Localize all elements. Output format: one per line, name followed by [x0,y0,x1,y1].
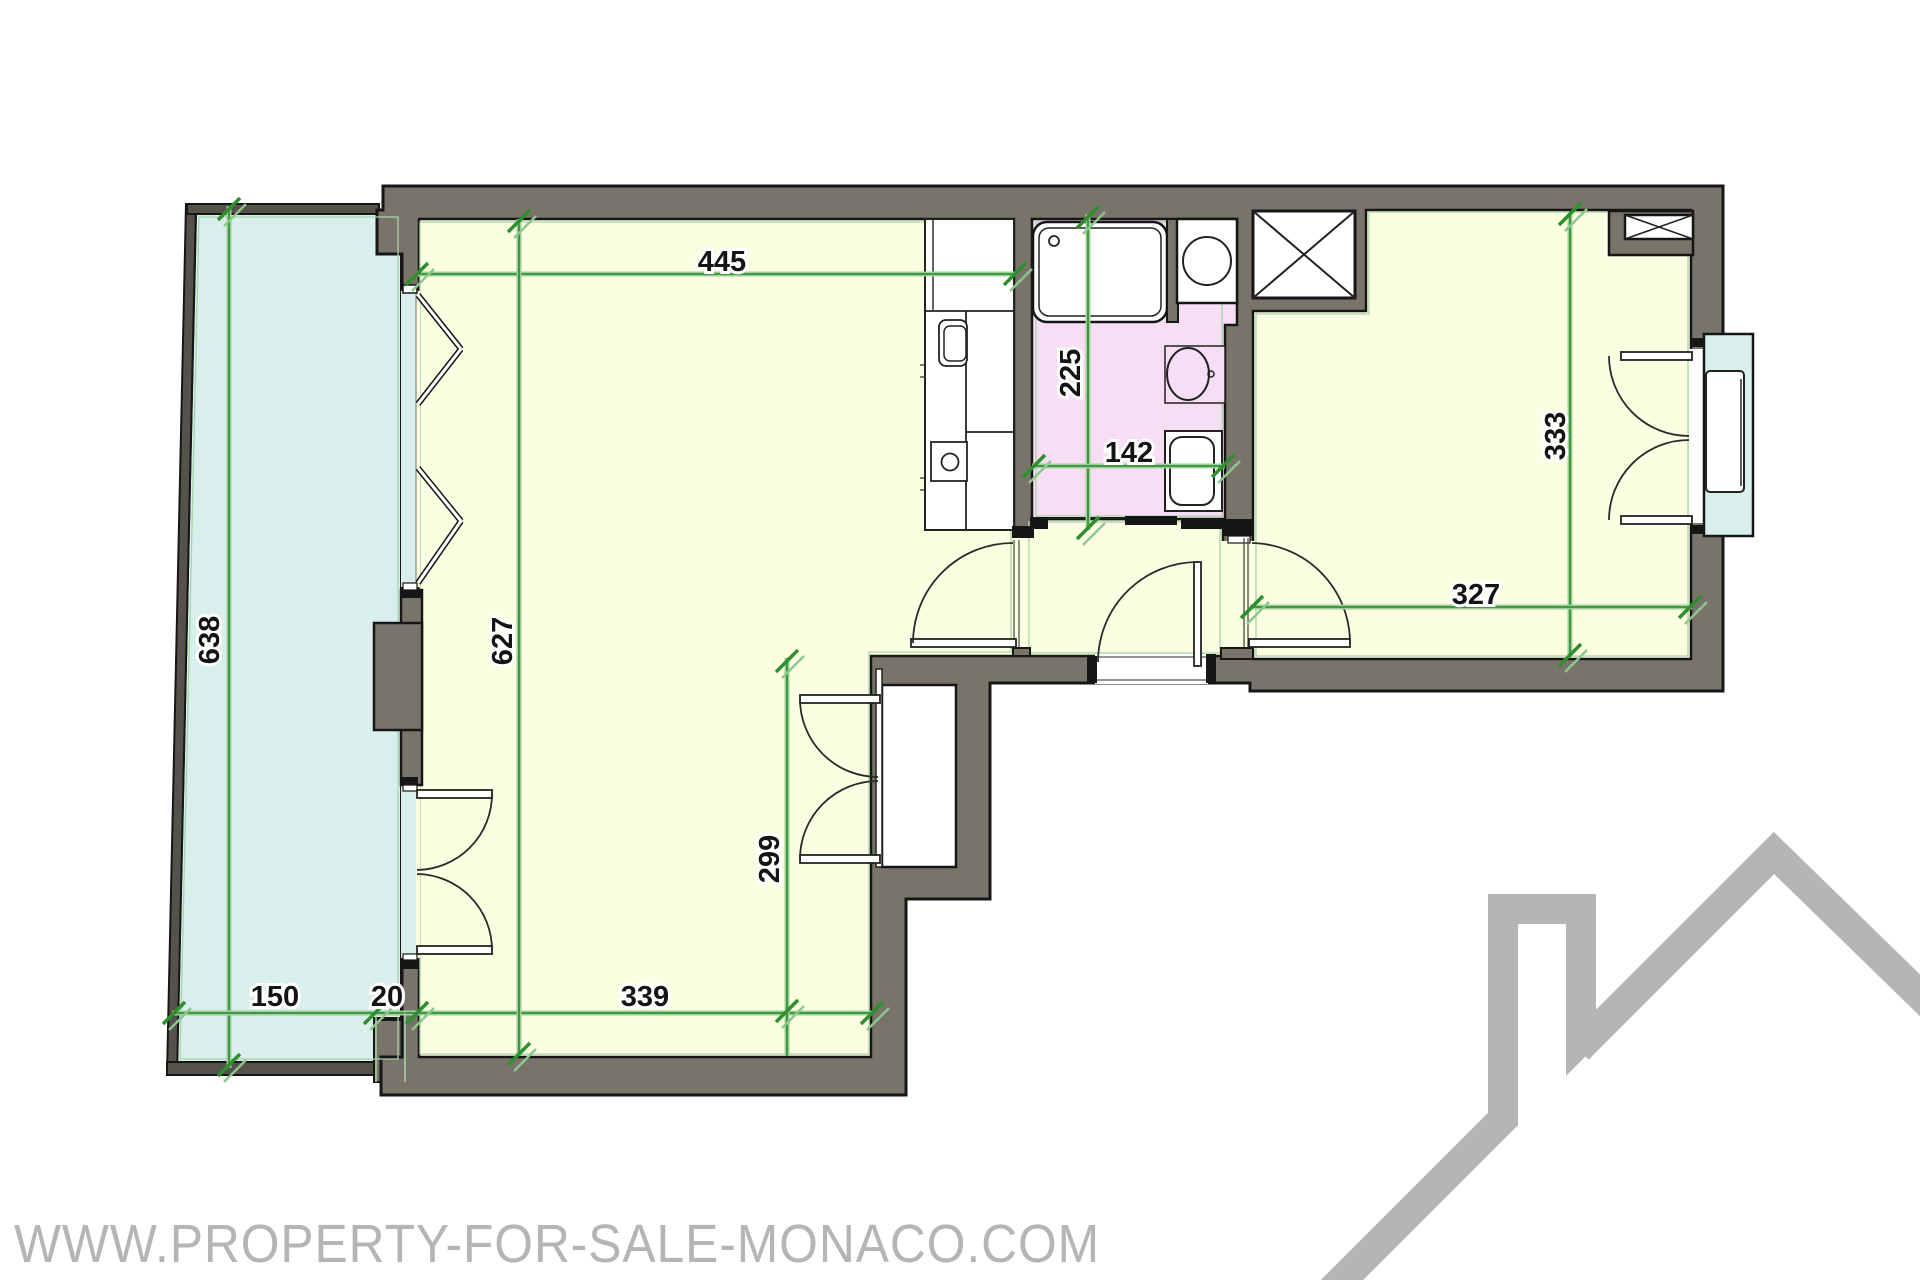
svg-text:142: 142 [1105,437,1153,469]
svg-text:339: 339 [621,981,669,1013]
svg-text:150: 150 [251,981,299,1013]
svg-text:445: 445 [698,246,746,278]
svg-text:299: 299 [754,835,786,883]
svg-text:20: 20 [371,981,403,1013]
svg-text:327: 327 [1452,579,1500,611]
svg-text:638: 638 [194,616,226,664]
svg-text:333: 333 [1540,412,1572,460]
svg-text:627: 627 [487,617,519,665]
svg-text:WWW.PROPERTY-FOR-SALE-MONACO.C: WWW.PROPERTY-FOR-SALE-MONACO.COM [14,1214,1100,1274]
svg-text:225: 225 [1055,349,1087,397]
